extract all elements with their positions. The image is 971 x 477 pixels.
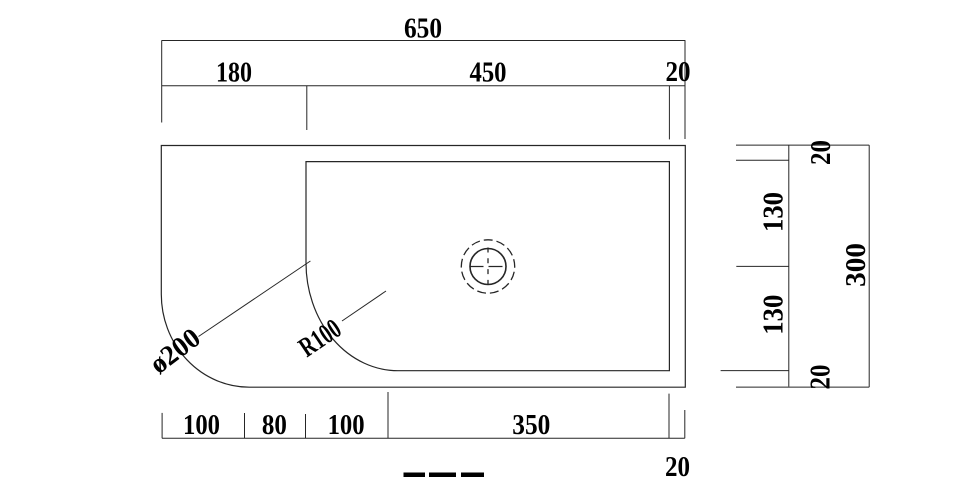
svg-text:100: 100 [328, 410, 365, 441]
svg-text:300: 300 [841, 243, 872, 287]
svg-text:80: 80 [262, 410, 287, 441]
svg-text:180: 180 [216, 58, 252, 89]
svg-text:20: 20 [665, 452, 690, 477]
svg-text:130: 130 [758, 295, 789, 335]
svg-text:650: 650 [404, 14, 442, 45]
svg-text:100: 100 [183, 410, 220, 441]
svg-text:ø200: ø200 [144, 322, 207, 380]
svg-text:350: 350 [512, 410, 550, 441]
svg-text:20: 20 [806, 365, 837, 390]
svg-text:450: 450 [470, 58, 507, 89]
svg-text:20: 20 [666, 57, 691, 88]
svg-text:130: 130 [758, 192, 789, 232]
svg-text:20: 20 [806, 140, 837, 165]
svg-text:R100: R100 [293, 313, 347, 363]
